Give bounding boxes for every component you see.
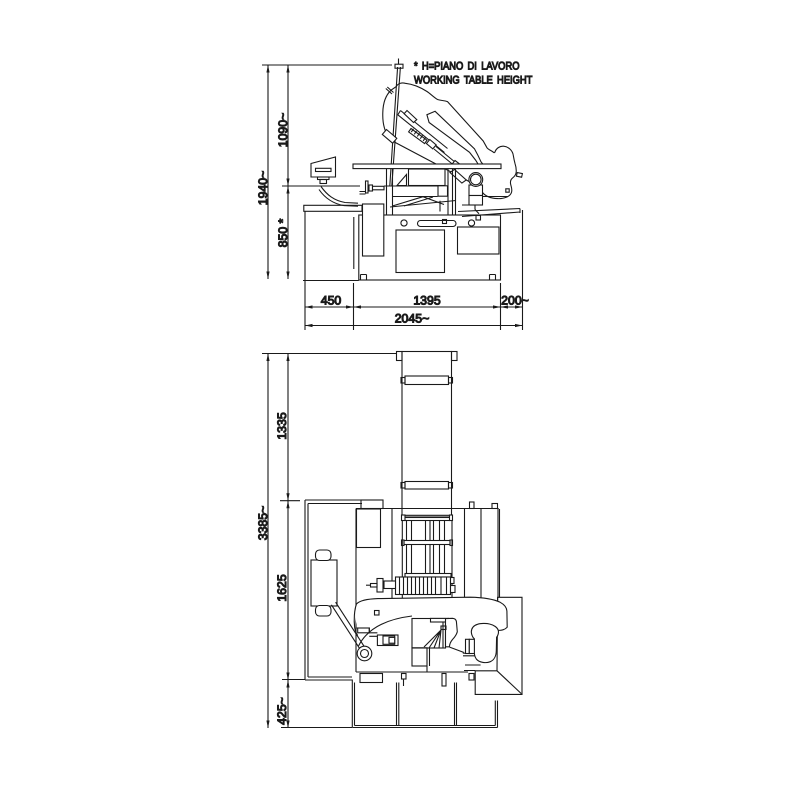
svg-text:1940~: 1940~ bbox=[256, 171, 270, 206]
svg-text:1335: 1335 bbox=[275, 412, 289, 440]
svg-text:3385~: 3385~ bbox=[256, 506, 270, 541]
svg-text:850 *: 850 * bbox=[276, 218, 290, 247]
svg-text:2045~: 2045~ bbox=[395, 312, 430, 326]
svg-text:* H=PIANO DI LAVORO: * H=PIANO DI LAVORO bbox=[414, 61, 520, 73]
svg-text:1395: 1395 bbox=[413, 294, 441, 308]
svg-text:1625: 1625 bbox=[275, 574, 289, 602]
svg-text:1090~: 1090~ bbox=[276, 113, 290, 148]
svg-text:425~: 425~ bbox=[275, 697, 289, 725]
svg-text:200~: 200~ bbox=[501, 294, 529, 308]
svg-text:450: 450 bbox=[321, 294, 342, 308]
svg-text:WORKING TABLE HEIGHT: WORKING TABLE HEIGHT bbox=[414, 75, 533, 87]
